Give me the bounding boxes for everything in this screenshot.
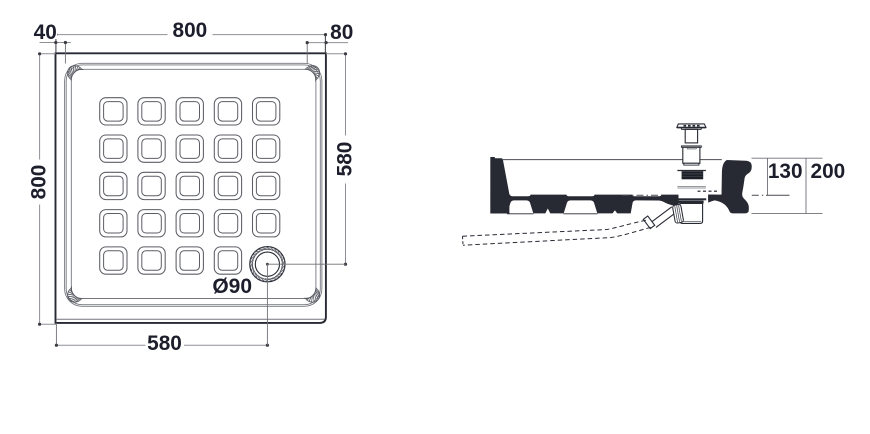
svg-text:580: 580	[147, 332, 182, 355]
svg-text:580: 580	[334, 142, 357, 177]
svg-text:130: 130	[768, 160, 803, 183]
svg-text:200: 200	[811, 160, 846, 183]
svg-text:Ø90: Ø90	[212, 275, 252, 298]
svg-text:40: 40	[34, 21, 57, 44]
svg-text:80: 80	[330, 21, 353, 44]
svg-text:800: 800	[173, 19, 208, 42]
svg-text:800: 800	[28, 165, 51, 200]
